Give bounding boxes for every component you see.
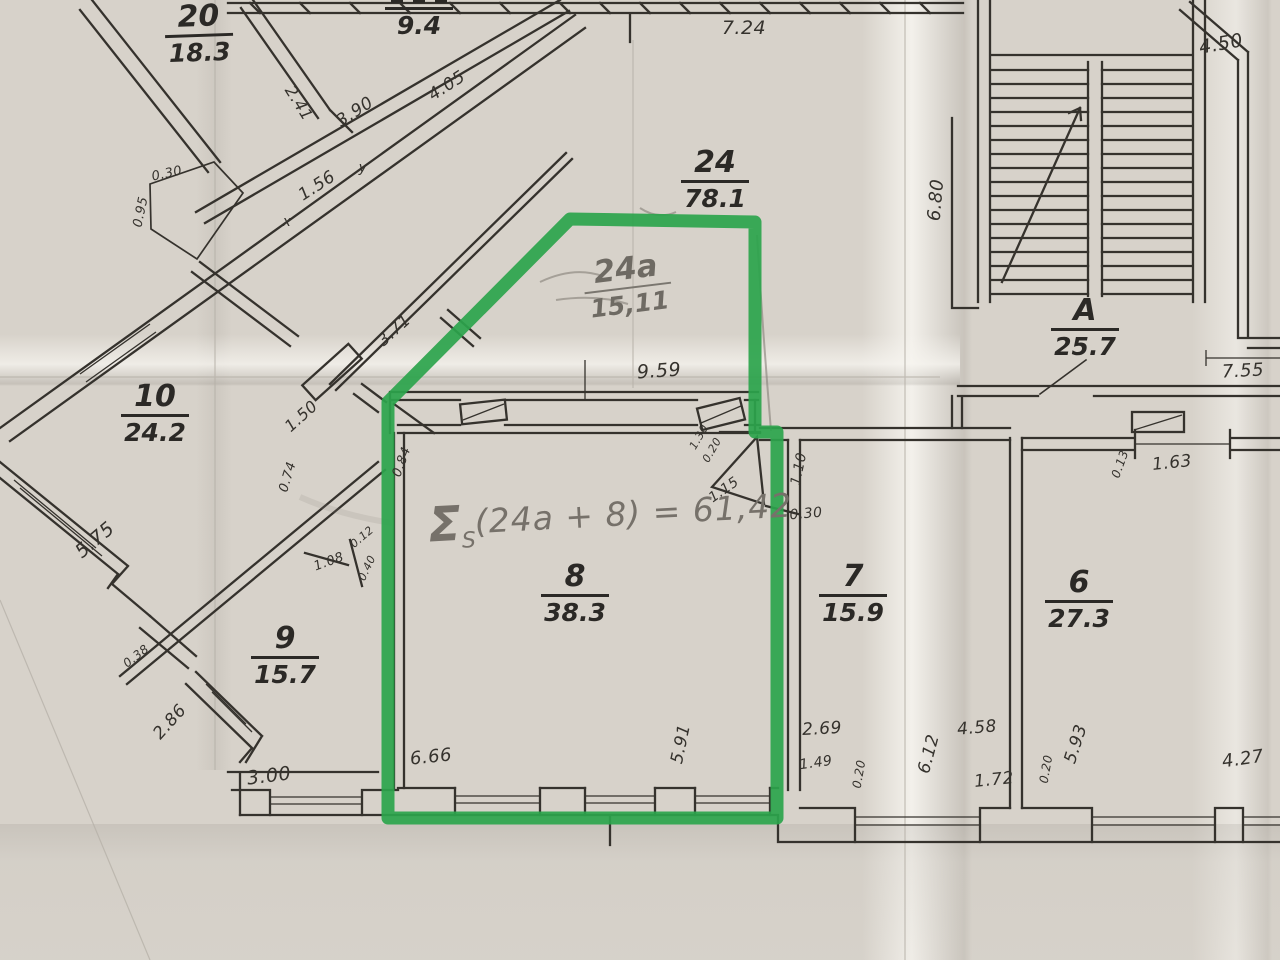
room-number: 6 [1069,568,1090,598]
room-label-rule [251,656,319,659]
room-area: 9.4 [397,13,441,38]
room-area: 18.3 [168,39,231,66]
room-number: 24 [694,148,736,178]
room-label-20: 20 18.3 [167,1,231,66]
room-label-24: 24 78.1 [684,148,746,211]
room-label-24a: 24a 15,11 [584,249,670,321]
room-label-10: 10 24.2 [124,382,186,445]
dim-label: 7.24 [722,17,766,39]
room-label-6: 6 27.3 [1048,568,1110,631]
room-number: 8 [565,562,586,592]
axis-mark: y [359,160,368,176]
plan-linework [0,0,1280,960]
dim-label: 4.58 [956,716,997,739]
room-label-rule [1051,328,1119,331]
room-number: 24a [592,250,659,289]
room-number: 7 [843,562,864,592]
stair-treads [992,70,1088,294]
floor-plan-scan: 20 18.3 9.4 24 78.1 24a 15,11 10 24.2 9 … [0,0,1280,960]
dim-label: 0.30 [789,505,823,524]
axis-mark: x [283,214,292,230]
room-area: 24.2 [124,420,186,445]
dim-label: 1.72 [973,768,1015,792]
dim-label: 9.59 [636,358,682,383]
room-label-rule [681,180,749,183]
sigma-symbol: Σ [427,496,463,554]
dim-label: 7.55 [1221,359,1264,382]
room-number: A [1073,296,1096,326]
room-label-rule [121,414,189,417]
room-label-rule [385,7,453,10]
room-label-A: A 25.7 [1054,296,1116,359]
room-label-7: 7 15.9 [822,562,884,625]
dim-label: 2.69 [802,718,843,740]
room-number: 9 [275,624,296,654]
room-area: 15.7 [254,662,316,687]
room-label-9: 9 15.7 [254,624,316,687]
room-label-rule [819,594,887,597]
room-area: 15.9 [822,600,884,625]
cut-off-room-number [391,0,447,3]
room-label-cut: 9.4 [388,0,450,38]
room-area: 25.7 [1054,334,1116,359]
room-number: 10 [134,382,176,412]
room-label-rule [541,594,609,597]
dim-label: 6.80 [924,178,949,222]
dim-label: 1.63 [1151,451,1193,475]
room-area: 27.3 [1048,606,1110,631]
room-area: 78.1 [684,186,746,211]
room-number: 20 [177,1,220,32]
room-label-8: 8 38.3 [544,562,606,625]
room-label-rule [1045,600,1113,603]
room-area: 38.3 [544,600,606,625]
dim-label: 6.66 [409,744,453,769]
walls [0,0,1280,845]
